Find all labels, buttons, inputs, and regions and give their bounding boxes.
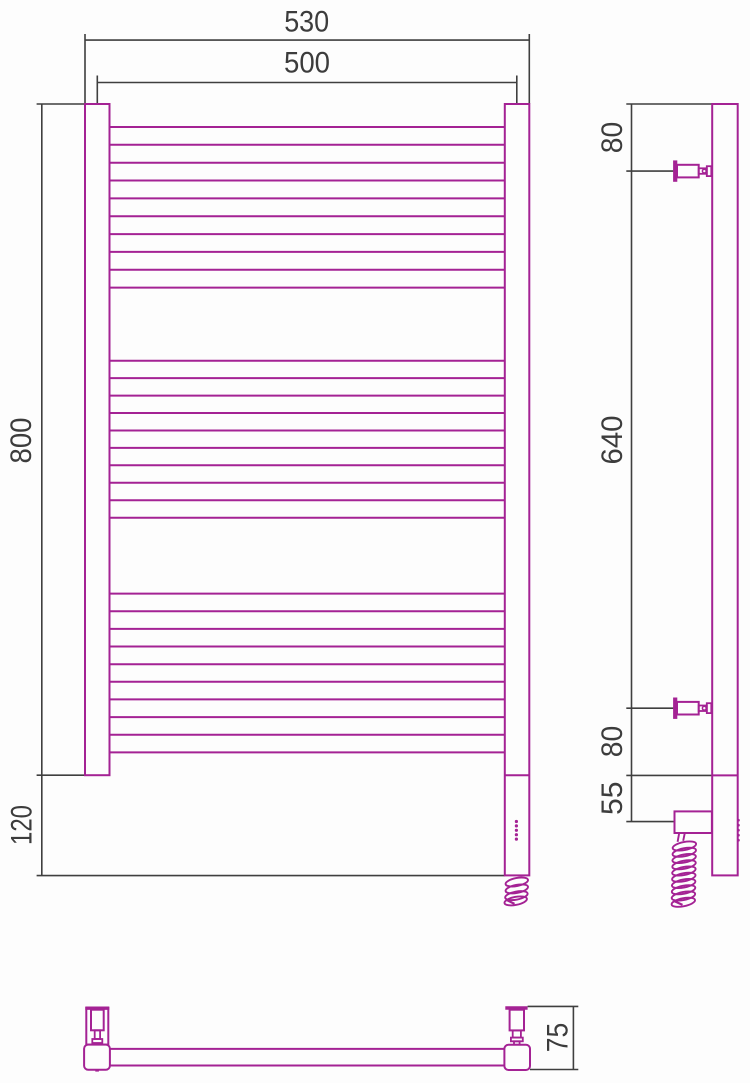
svg-text:640: 640 [596,416,629,465]
svg-text:80: 80 [596,122,629,154]
svg-text:800: 800 [5,418,38,464]
svg-text:500: 500 [284,46,330,79]
svg-text:120: 120 [6,805,39,845]
svg-text:55: 55 [596,782,629,816]
svg-text:80: 80 [596,726,629,758]
svg-text:530: 530 [284,6,329,39]
svg-text:75: 75 [542,1023,575,1053]
